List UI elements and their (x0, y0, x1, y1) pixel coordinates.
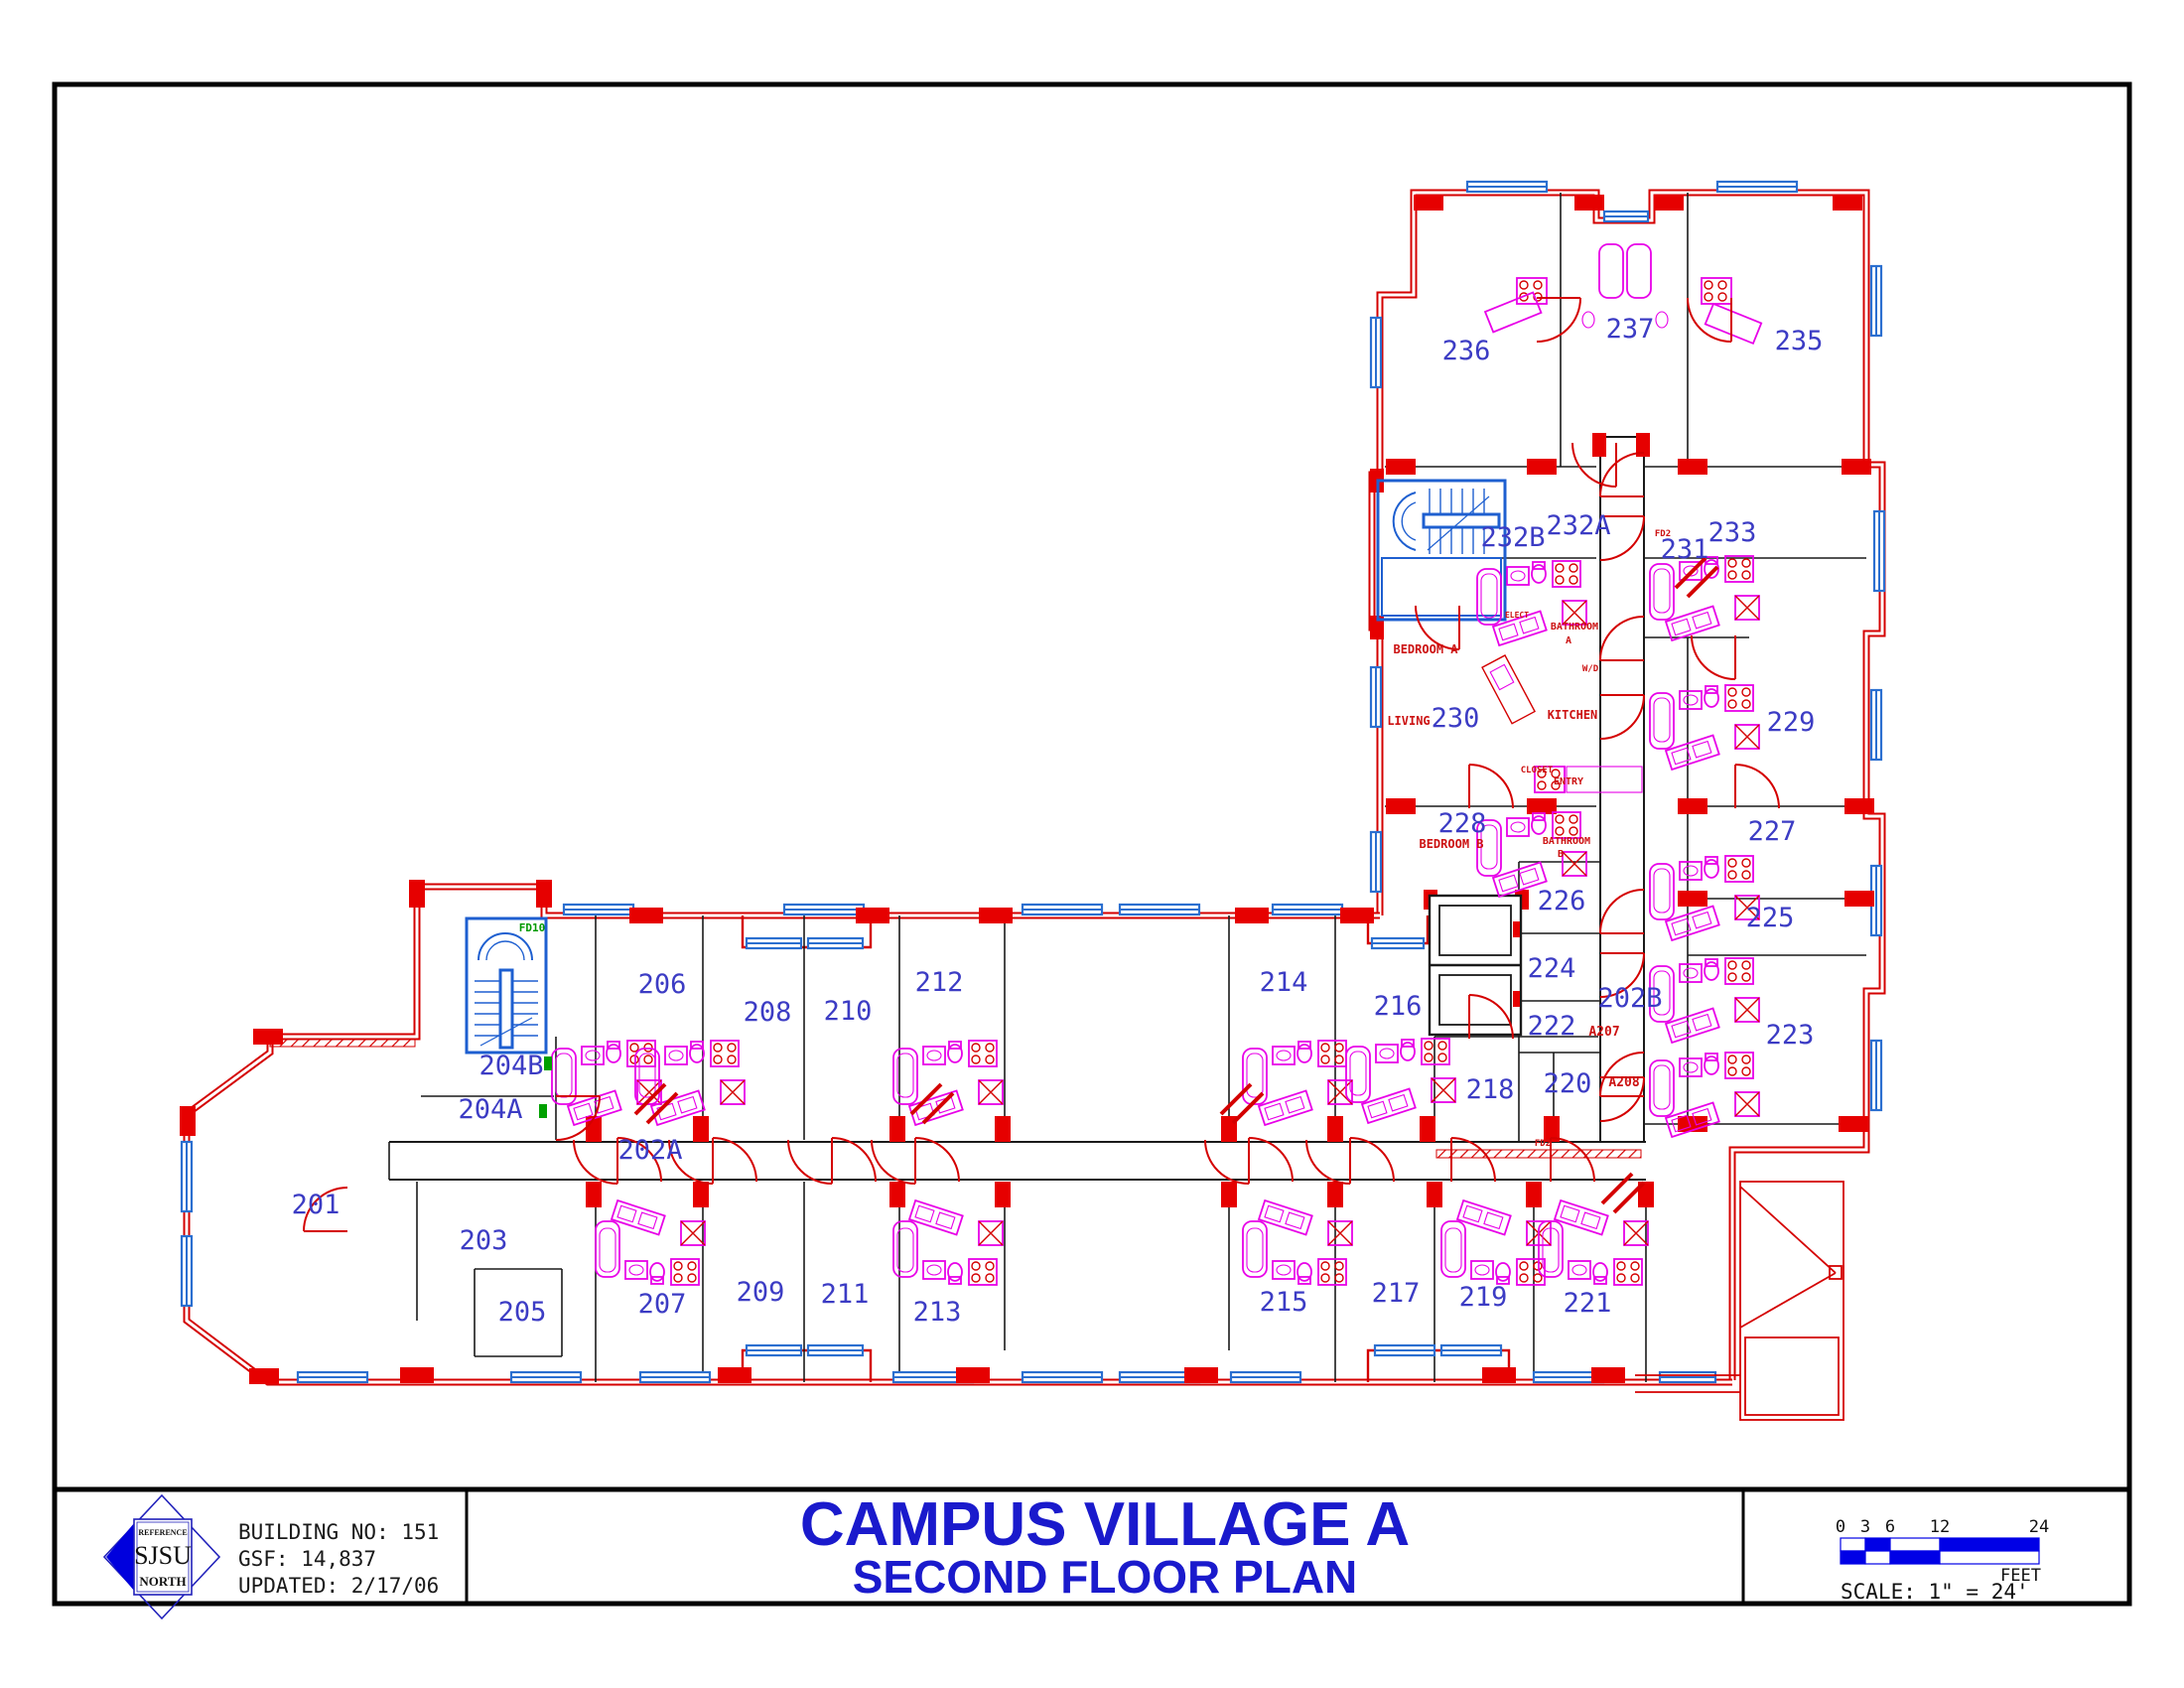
shear-wall-block (249, 1368, 279, 1384)
room-number-label: 223 (1766, 1020, 1815, 1051)
shear-wall-block (995, 1116, 1011, 1142)
sheet-title-line2: SECOND FLOOR PLAN (853, 1551, 1358, 1603)
function-label: CLOSET (1521, 766, 1554, 775)
window-icon (808, 938, 863, 948)
room-number-label: 218 (1466, 1074, 1515, 1105)
room-number-label: 235 (1775, 326, 1824, 356)
room-number-label: 214 (1260, 967, 1308, 998)
window-icon (1231, 1372, 1300, 1382)
shear-wall-block (889, 1116, 905, 1142)
shear-wall-block (180, 1106, 196, 1136)
shear-wall-block (253, 1029, 283, 1045)
window-icon (808, 1345, 863, 1355)
room-number-label: 210 (824, 996, 873, 1027)
window-icon (1467, 182, 1547, 192)
window-icon (747, 938, 801, 948)
window-icon (1273, 905, 1342, 914)
shear-wall-block (1839, 1116, 1868, 1132)
window-icon (1871, 690, 1881, 760)
room-number-label: 212 (915, 967, 964, 998)
room-number-label: 226 (1538, 886, 1586, 916)
floor-plan-drawing: 201202A202B203204A204B205206207208209210… (0, 0, 2184, 1688)
shear-wall-block (1414, 195, 1443, 211)
shear-wall-block (629, 908, 663, 923)
shear-wall-block (1678, 798, 1707, 814)
room-number-label: 209 (737, 1277, 785, 1308)
updated-text: UPDATED: 2/17/06 (238, 1574, 439, 1598)
room-number-label: 225 (1746, 903, 1795, 933)
elevator-shafts-icon (1430, 896, 1521, 1035)
window-icon (1023, 905, 1102, 914)
window-icon (640, 1372, 710, 1382)
window-icon (1375, 1345, 1434, 1355)
window-icon (1871, 266, 1881, 336)
shear-wall-block (1184, 1367, 1218, 1383)
shear-wall-block (889, 1182, 905, 1207)
window-icon (1441, 1345, 1501, 1355)
shear-wall-block (1654, 195, 1684, 211)
shear-wall-block (1574, 195, 1604, 211)
shear-wall-block (693, 1116, 709, 1142)
room-number-label: 206 (638, 969, 687, 1000)
function-label: ENTRY (1554, 776, 1583, 787)
room-number-label: 232B (1480, 522, 1545, 553)
room-number-label: 220 (1544, 1068, 1592, 1099)
window-icon (564, 905, 633, 914)
room-number-label: 204A (458, 1094, 522, 1125)
room-number-label: 202A (617, 1135, 682, 1166)
shear-wall-block (1340, 908, 1374, 923)
function-label: A207 (1588, 1025, 1619, 1040)
function-label: LIVING (1387, 714, 1430, 728)
window-icon (1023, 1372, 1102, 1382)
shear-wall-block (718, 1367, 751, 1383)
room-number-label: 203 (460, 1225, 508, 1256)
building-no-text: BUILDING NO: 151 (238, 1520, 439, 1544)
function-label: B (1558, 849, 1564, 860)
shear-wall-block (1592, 433, 1606, 457)
window-icon (784, 905, 864, 914)
shear-wall-block (1678, 891, 1707, 907)
window-icon (182, 1236, 192, 1306)
shear-wall-block (1833, 195, 1862, 211)
fire-damper-labels: FD10 (519, 921, 546, 934)
scale-bar-checker (1841, 1538, 2039, 1564)
shear-wall-block (1420, 1116, 1435, 1142)
sheet-title-line1: CAMPUS VILLAGE A (800, 1490, 1410, 1559)
room-number-label: 233 (1708, 517, 1757, 548)
function-label: BEDROOM B (1419, 837, 1483, 851)
window-icon (1717, 182, 1797, 192)
function-label: FD2 (1655, 529, 1671, 539)
shear-wall-block (409, 880, 425, 908)
room-number-label: 228 (1438, 808, 1487, 839)
function-label: BATHROOM (1543, 836, 1590, 847)
window-icon (1372, 938, 1424, 948)
shear-wall-block (995, 1182, 1011, 1207)
sheet-title: CAMPUS VILLAGE A SECOND FLOOR PLAN (800, 1490, 1410, 1603)
room-number-label: 201 (292, 1190, 341, 1220)
shear-wall-block (536, 880, 552, 908)
scale-ratio-text: SCALE: 1" = 24' (1841, 1580, 2029, 1604)
room-number-label: 213 (913, 1297, 962, 1328)
window-icon (1371, 318, 1381, 387)
scale-tick-label: 24 (2029, 1517, 2049, 1537)
floor-plan-sheet: 201202A202B203204A204B205206207208209210… (0, 0, 2184, 1688)
shear-wall-block (1844, 891, 1874, 907)
window-icon (298, 1372, 367, 1382)
function-label: A (1566, 635, 1571, 646)
room-number-label: 222 (1528, 1011, 1576, 1042)
logo-sjsu-text: SJSU (134, 1541, 192, 1570)
shear-wall-block (1386, 459, 1416, 475)
window-icon (1371, 667, 1381, 727)
shear-wall-block (586, 1182, 602, 1207)
shear-wall-block (1844, 798, 1874, 814)
scale-tick-label: 3 (1860, 1517, 1870, 1537)
room-number-label: 217 (1372, 1278, 1421, 1309)
scale-tick-label: 0 (1836, 1517, 1845, 1537)
room-number-label: 219 (1459, 1282, 1508, 1313)
shear-wall-block (1427, 1182, 1442, 1207)
function-label: BEDROOM A (1393, 642, 1458, 656)
window-icon (747, 1345, 801, 1355)
room-number-label: 216 (1374, 991, 1423, 1022)
shear-wall-block (1482, 1367, 1516, 1383)
scale-tick-label: 6 (1885, 1517, 1895, 1537)
shear-wall-block (1842, 459, 1871, 475)
room-number-label: 237 (1606, 314, 1655, 345)
window-icon (1371, 832, 1381, 892)
room-number-label: 229 (1767, 707, 1816, 738)
room-number-label: 207 (638, 1289, 687, 1320)
shear-wall-block (1526, 1182, 1542, 1207)
shear-wall-block (1527, 459, 1557, 475)
logo-reference-text: REFERENCE (138, 1528, 187, 1537)
function-label: ELECT (1505, 611, 1529, 620)
room-number-label: 230 (1432, 703, 1480, 734)
shear-wall-block (856, 908, 889, 923)
room-number-label: 232A (1546, 510, 1610, 541)
room-number-label: 208 (744, 997, 792, 1028)
function-label: A208 (1608, 1075, 1639, 1090)
window-icon (1660, 1372, 1715, 1382)
shear-wall-block (1386, 798, 1416, 814)
shear-wall-block (1591, 1367, 1625, 1383)
window-icon (1874, 511, 1884, 591)
room-number-label: 224 (1528, 953, 1576, 984)
window-icon (1871, 1041, 1881, 1110)
shear-wall-block (1327, 1116, 1343, 1142)
window-icon (1120, 905, 1199, 914)
function-label: KITCHEN (1548, 708, 1598, 722)
room-number-label: 215 (1260, 1287, 1308, 1318)
room-number-label: 236 (1442, 336, 1491, 366)
shear-wall-block (693, 1182, 709, 1207)
function-label: BATHROOM (1551, 622, 1598, 633)
page-background (0, 0, 2184, 1688)
fire-damper-label: FD10 (519, 921, 546, 934)
room-number-label: 221 (1564, 1288, 1612, 1319)
room-number-label: 227 (1748, 816, 1797, 847)
window-icon (182, 1142, 192, 1211)
gsf-text: GSF: 14,837 (238, 1547, 376, 1571)
window-icon (1604, 211, 1648, 221)
shear-wall-block (1235, 908, 1269, 923)
room-number-label: 202B (1597, 983, 1662, 1014)
shear-wall-block (979, 908, 1013, 923)
room-number-label: 205 (498, 1297, 547, 1328)
function-label: W/D (1582, 664, 1599, 674)
shear-wall-block (1327, 1182, 1343, 1207)
shear-wall-block (956, 1367, 990, 1383)
shear-wall-block (1678, 459, 1707, 475)
logo-north-text: NORTH (139, 1574, 186, 1589)
shear-wall-block (1221, 1182, 1237, 1207)
room-number-label: 211 (821, 1279, 870, 1310)
shear-wall-block (400, 1367, 434, 1383)
room-number-label: 204B (478, 1051, 543, 1081)
scale-tick-label: 12 (1930, 1517, 1950, 1537)
function-label: FD2 (1535, 1139, 1551, 1149)
window-icon (511, 1372, 581, 1382)
